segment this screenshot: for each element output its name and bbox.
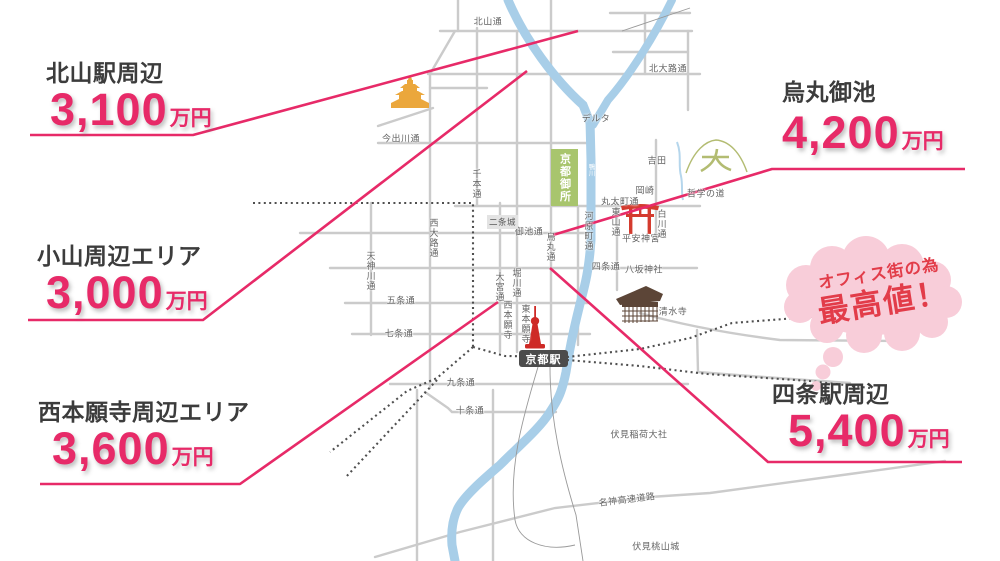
label-kitayama-dori: 北山通 <box>474 15 503 28</box>
price: 3,600 万円 <box>52 425 250 472</box>
label-oike-dori: 御池通 <box>515 225 544 238</box>
nijo-castle-box: 二条城 <box>487 215 518 229</box>
label-higashiyama-dori: 東山通 <box>610 207 623 237</box>
price-unit: 万円 <box>902 125 944 155</box>
kyoto-price-map: 北山通 北大路通 今出川通 デルタ 吉田 岡崎 哲学の道 丸太町通 御池通 平安… <box>0 0 1000 561</box>
label-karasuma-dori: 烏丸通 <box>545 232 558 262</box>
callout-kitayama: 北山駅周辺 3,100 万円 <box>46 60 212 134</box>
label-gojo-dori: 五条通 <box>387 294 416 307</box>
label-jujo-dori: 十条通 <box>456 404 485 417</box>
label-nishioji-dori: 西大路通 <box>428 218 441 258</box>
price-unit: 万円 <box>172 441 214 471</box>
callout-nishihonganji: 西本願寺周辺エリア 3,600 万円 <box>38 399 250 473</box>
label-heian-jingu: 平安神宮 <box>622 232 660 245</box>
price-value: 3,100 <box>50 86 168 133</box>
label-kujo-dori: 九条通 <box>447 376 476 389</box>
label-shirakawa-dori: 白川通 <box>656 209 669 239</box>
price: 3,000 万円 <box>46 269 208 316</box>
area-name: 北山駅周辺 <box>46 60 212 86</box>
label-tetsugaku-no-michi: 哲学の道 <box>687 187 725 200</box>
callout-karasuma-oike: 烏丸御池 4,200 万円 <box>782 79 944 157</box>
price: 5,400 万円 <box>788 407 950 454</box>
price: 4,200 万円 <box>782 109 944 156</box>
price-value: 4,200 <box>782 109 900 156</box>
label-omiya-dori: 大宮通 <box>494 272 507 302</box>
label-horikawa-dori: 堀川通 <box>511 268 524 298</box>
label-kitaoji-dori: 北大路通 <box>649 62 687 75</box>
label-kawaramachi-dori: 河原町通 <box>583 211 596 251</box>
price-value: 5,400 <box>788 407 906 454</box>
label-tenjingawa-dori: 天神川通 <box>365 251 378 291</box>
label-kamo-river: 鴨川 <box>585 164 595 177</box>
daimonji-icon <box>686 140 747 173</box>
area-name: 烏丸御池 <box>782 79 944 105</box>
area-name: 四条駅周辺 <box>772 381 950 407</box>
label-delta: デルタ <box>582 112 611 125</box>
label-shijo-dori: 四条通 <box>592 260 621 273</box>
label-fushimi-inari: 伏見稲荷大社 <box>610 428 667 441</box>
area-name: 小山周辺エリア <box>37 243 208 269</box>
price-unit: 万円 <box>908 423 950 453</box>
kyoto-station-box: 京都駅 <box>519 350 568 367</box>
label-yoshida: 吉田 <box>647 154 666 167</box>
price: 3,100 万円 <box>50 86 212 133</box>
label-higashi-honganji: 東本願寺 <box>520 304 533 344</box>
label-shichijo-dori: 七条通 <box>385 327 414 340</box>
callout-koyama: 小山周辺エリア 3,000 万円 <box>37 243 208 317</box>
railway-thin <box>513 8 690 561</box>
price-value: 3,600 <box>52 425 170 472</box>
area-name: 西本願寺周辺エリア <box>38 399 250 425</box>
shirakawa-stream <box>677 142 683 200</box>
kamo-river <box>452 0 672 561</box>
label-marutamachi-dori: 丸太町通 <box>601 195 639 208</box>
price-value: 3,000 <box>46 269 164 316</box>
gosho-box: 京都御所 <box>551 149 578 206</box>
label-kiyomizu-dera: 清水寺 <box>659 305 688 318</box>
label-senbon-dori: 千本通 <box>471 169 484 199</box>
price-unit: 万円 <box>166 285 208 315</box>
price-unit: 万円 <box>170 102 212 132</box>
callout-shijo: 四条駅周辺 5,400 万円 <box>772 381 950 455</box>
label-nishi-honganji: 西本願寺 <box>502 300 515 340</box>
label-yasaka-jinja: 八坂神社 <box>625 263 663 276</box>
label-imadegawa-dori: 今出川通 <box>382 132 420 145</box>
label-fushimi-momoyama-castle: 伏見桃山城 <box>632 540 680 553</box>
